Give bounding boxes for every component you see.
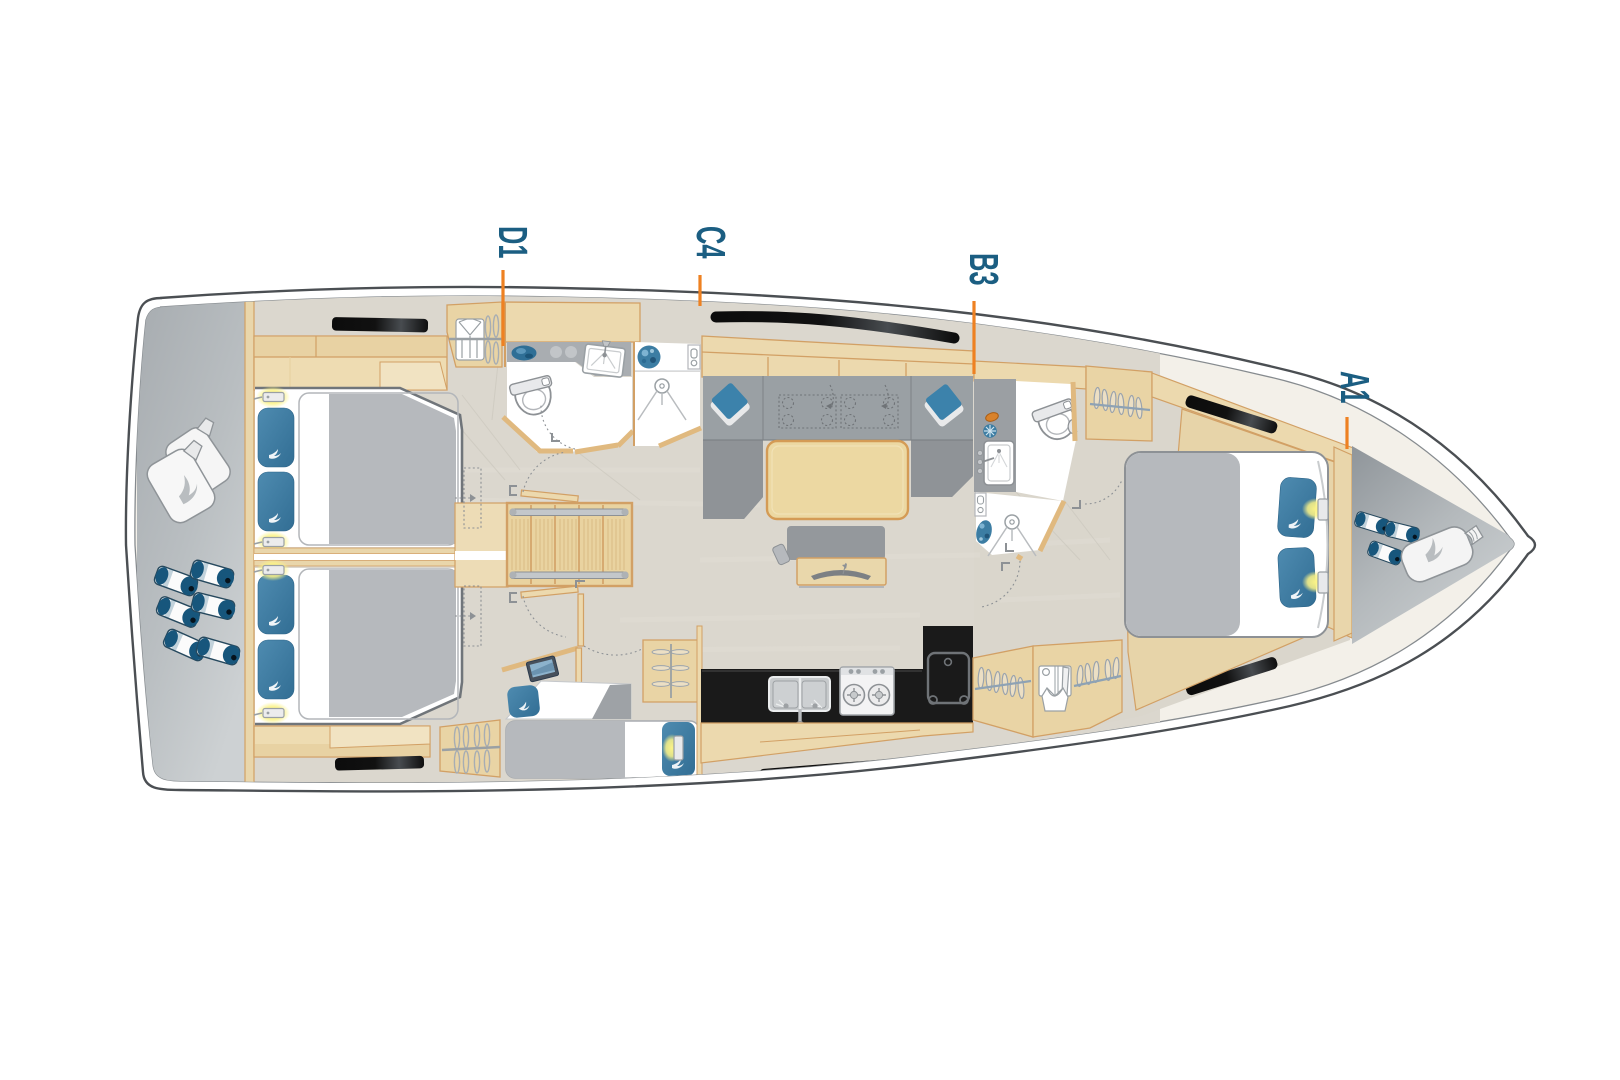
svg-text:C4: C4 [687, 226, 733, 259]
svg-text:D1: D1 [489, 226, 535, 259]
svg-text:B3: B3 [960, 253, 1006, 285]
svg-text:A1: A1 [1331, 371, 1377, 404]
